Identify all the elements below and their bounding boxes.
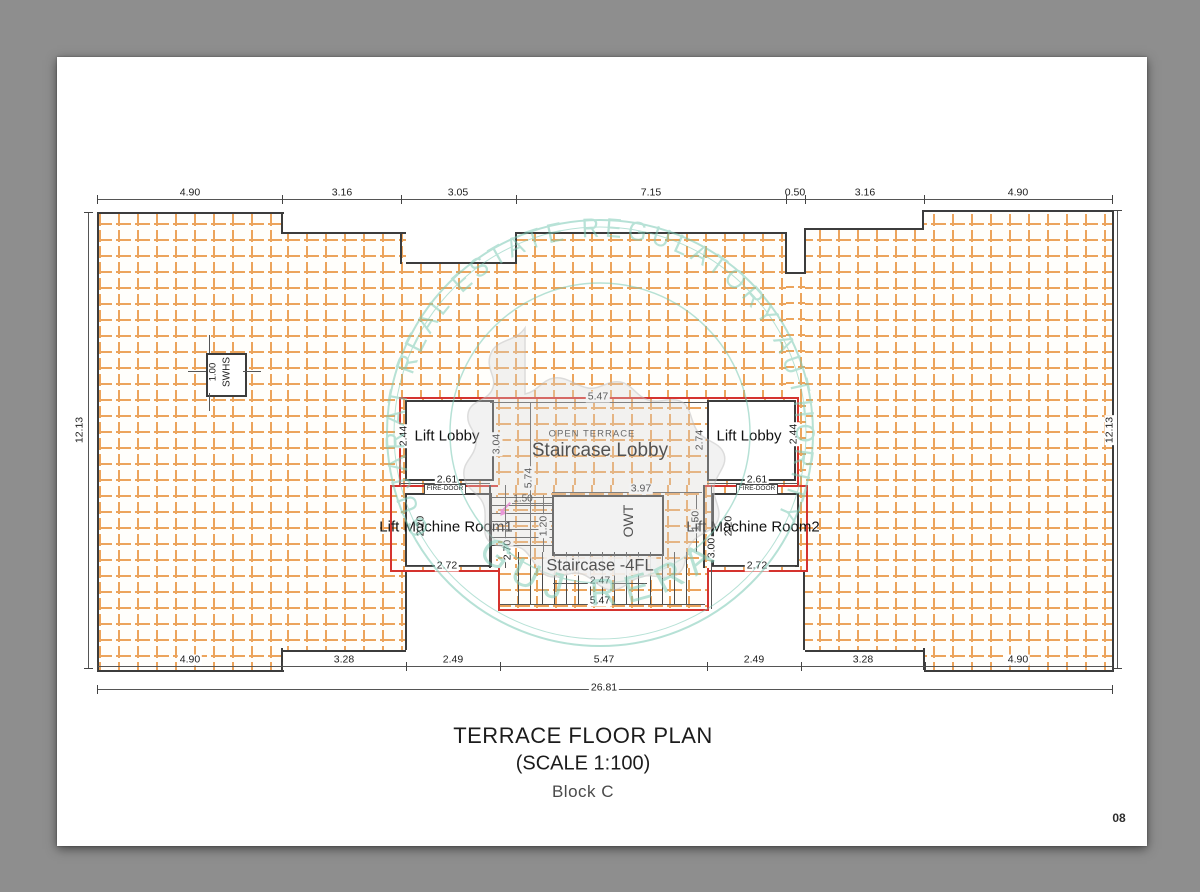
dim-line-top <box>97 199 1112 200</box>
dim-bot-7: 4.90 <box>1006 655 1030 666</box>
dim-lobby-right-h: 2.44 <box>789 422 800 446</box>
terrace-slab <box>805 228 924 652</box>
dim-tick <box>282 662 283 671</box>
fire-door-tag-right: FIRE-DOOR <box>736 484 778 495</box>
lift-lobby-left-label: Lift Lobby <box>414 428 479 445</box>
swhs-label: SWHS <box>222 357 233 387</box>
dim-tick <box>500 662 501 671</box>
drawing-title: TERRACE FLOOR PLAN <box>453 723 713 749</box>
dim-owt-w: 3.97 <box>629 484 653 495</box>
dim-tick <box>1112 685 1113 694</box>
dim-mr1-w: 2.72 <box>435 561 459 572</box>
dim-top-6: 3.16 <box>853 188 877 199</box>
parapet-wall <box>922 210 924 230</box>
dim-bot-2: 3.28 <box>332 655 356 666</box>
dim-top-2: 3.16 <box>330 188 354 199</box>
dim-tick <box>97 685 98 694</box>
swhs-size-dim: 1.00 <box>208 363 219 382</box>
block-name: Block C <box>552 782 614 802</box>
dim-flight-w: 1.50 <box>513 494 532 505</box>
dim-tick <box>516 195 517 204</box>
dim-flight-h: 1.20 <box>539 514 550 538</box>
dim-side-right: 12.13 <box>1105 415 1116 445</box>
terrace-slab-left <box>97 212 284 672</box>
dim-total-width: 26.81 <box>589 683 619 694</box>
dim-bot-4: 5.47 <box>592 655 616 666</box>
fire-door-tag-left: FIRE-DOOR <box>424 484 466 495</box>
swhs-dim-line <box>209 393 210 411</box>
dim-tick <box>1112 662 1113 671</box>
terrace-slab <box>516 232 786 399</box>
parapet-wall <box>804 228 806 274</box>
dim-stairlobby-left-h: 3.04 <box>492 432 503 456</box>
dim-line-right <box>1117 210 1118 668</box>
dim-tick <box>786 195 787 204</box>
parapet-wall <box>515 232 517 264</box>
dim-tick <box>1113 210 1122 211</box>
lift-machine-room-1-label: Lift Machine Room1 <box>379 519 512 536</box>
dim-lobby-left-h: 2.44 <box>399 424 410 448</box>
dim-tick <box>925 662 926 671</box>
dim-mr2-w: 2.72 <box>745 561 769 572</box>
dim-tick <box>924 195 925 204</box>
dim-tick <box>282 195 283 204</box>
open-terrace-label: OPEN TERRACE <box>549 429 636 440</box>
swhs-dim-line <box>243 371 261 372</box>
parapet-wall <box>400 232 402 264</box>
dim-bot-5: 2.49 <box>742 655 766 666</box>
terrace-slab-right <box>924 210 1114 672</box>
dim-top-4: 7.15 <box>639 188 663 199</box>
lift-lobby-right-label: Lift Lobby <box>716 428 781 445</box>
dim-stair-block-w: 5.47 <box>588 596 612 607</box>
parapet-wall <box>785 232 787 274</box>
staircase-lobby-label: Staircase Lobby <box>532 440 668 462</box>
parapet-wall <box>785 272 806 274</box>
dim-top-3: 3.05 <box>446 188 470 199</box>
dim-bot-1: 4.90 <box>178 655 202 666</box>
dim-tread-w: 2.47 <box>588 576 612 587</box>
dim-tick <box>1113 668 1122 669</box>
dim-side-left: 12.13 <box>75 415 86 445</box>
dim-tick <box>97 195 98 204</box>
terrace-slab <box>406 262 516 399</box>
dim-stair-left-h: 2.70 <box>503 538 514 562</box>
parapet-wall <box>405 568 407 650</box>
owt-tank-box <box>552 495 664 556</box>
terrace-slab <box>786 274 805 397</box>
terrace-slab <box>282 232 406 652</box>
staircase-4fl-label: Staircase -4FL <box>543 557 656 576</box>
dim-top-7: 4.90 <box>1006 188 1030 199</box>
dim-tick <box>805 195 806 204</box>
dim-tick <box>84 668 93 669</box>
dim-bot-6: 3.28 <box>851 655 875 666</box>
swhs-dim-line <box>209 335 210 353</box>
dim-line <box>552 492 702 493</box>
dim-stair-right-h: 3.00 <box>707 536 718 560</box>
dim-line-left <box>88 212 89 668</box>
dim-core-h: 5.74 <box>524 466 535 490</box>
dim-core-top: 5.47 <box>586 392 610 403</box>
parapet-wall <box>281 212 283 234</box>
dim-tick <box>401 195 402 204</box>
dim-tick <box>84 212 93 213</box>
dim-stairlobby-right-h: 2.74 <box>695 428 706 452</box>
owt-label: OWT <box>620 505 636 538</box>
dim-tick <box>1112 195 1113 204</box>
drawing-scale: (SCALE 1:100) <box>516 753 651 776</box>
dim-tick <box>406 662 407 671</box>
page-number: 08 <box>1112 811 1125 825</box>
dim-tick <box>707 662 708 671</box>
dim-bot-3: 2.49 <box>441 655 465 666</box>
swhs-dim-line <box>188 371 206 372</box>
dim-top-1: 4.90 <box>178 188 202 199</box>
dim-line-bottom <box>97 666 1112 667</box>
parapet-wall <box>803 568 805 650</box>
canvas: 1.00 SWHS 4.90 3.16 3.05 7.15 0.50 3.16 … <box>0 0 1200 892</box>
lift-machine-room-2-label: Lift Machine Room2 <box>686 519 819 536</box>
dim-tick <box>97 662 98 671</box>
dim-tick <box>801 662 802 671</box>
